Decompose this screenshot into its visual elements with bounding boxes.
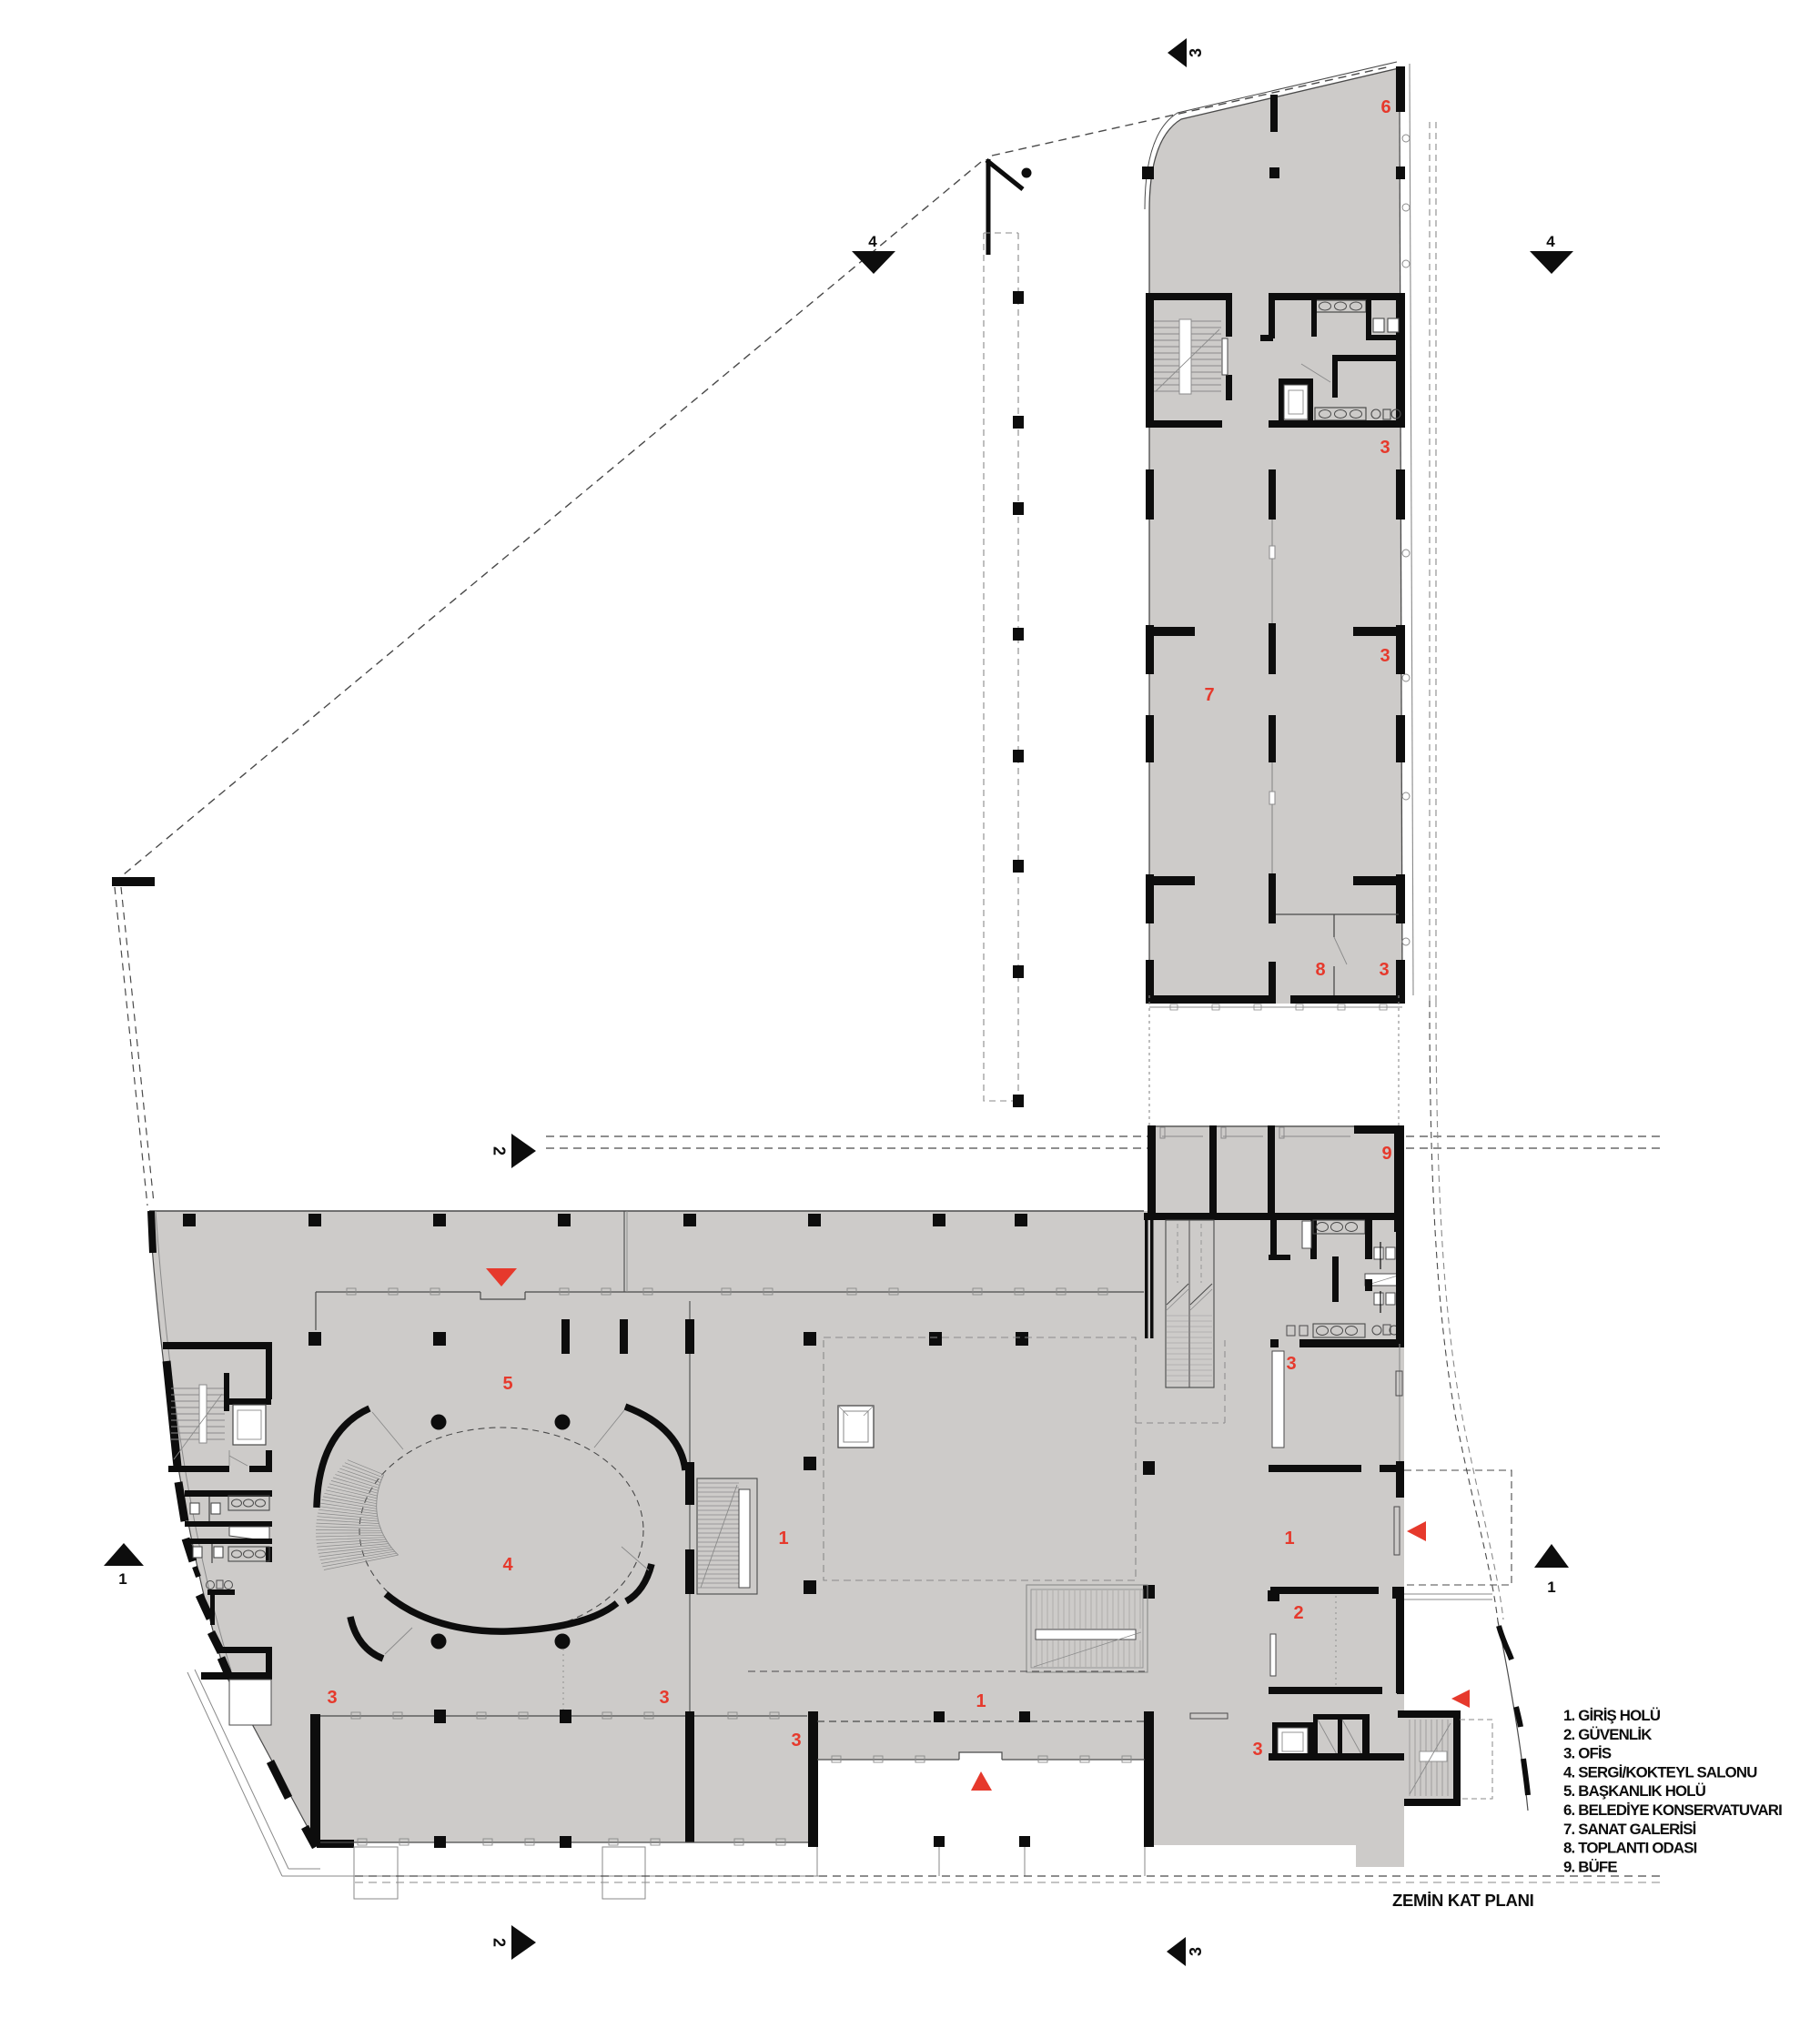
svg-text:9. BÜFE: 9. BÜFE [1563, 1858, 1617, 1875]
svg-text:6. BELEDİYE KONSERVATUVARI: 6. BELEDİYE KONSERVATUVARI [1563, 1801, 1782, 1819]
svg-text:1: 1 [778, 1529, 788, 1549]
svg-text:3: 3 [1379, 960, 1389, 980]
svg-text:3: 3 [1380, 646, 1390, 666]
svg-text:ZEMİN KAT PLANI: ZEMİN KAT PLANI [1392, 1891, 1533, 1910]
svg-text:3: 3 [1187, 48, 1205, 57]
svg-text:3: 3 [327, 1688, 337, 1708]
svg-text:5: 5 [502, 1374, 512, 1394]
svg-text:7. SANAT GALERİSİ: 7. SANAT GALERİSİ [1563, 1821, 1696, 1838]
svg-text:3: 3 [1380, 438, 1390, 458]
svg-text:5. BAŞKANLIK HOLÜ: 5. BAŞKANLIK HOLÜ [1563, 1782, 1706, 1800]
svg-text:1: 1 [976, 1691, 986, 1711]
svg-text:4: 4 [502, 1555, 513, 1575]
svg-text:8: 8 [1315, 960, 1325, 980]
svg-text:2: 2 [490, 1146, 508, 1155]
svg-text:9: 9 [1381, 1144, 1391, 1164]
svg-text:2: 2 [1293, 1603, 1303, 1623]
svg-text:3. OFİS: 3. OFİS [1563, 1745, 1612, 1762]
svg-text:8. TOPLANTI ODASI: 8. TOPLANTI ODASI [1563, 1840, 1697, 1857]
svg-text:2: 2 [490, 1938, 508, 1947]
svg-text:6: 6 [1380, 97, 1390, 117]
svg-text:1. GİRİŞ HOLÜ: 1. GİRİŞ HOLÜ [1563, 1707, 1661, 1724]
svg-text:3: 3 [1286, 1354, 1296, 1374]
svg-text:1: 1 [1284, 1529, 1294, 1549]
svg-text:1: 1 [1547, 1579, 1555, 1596]
svg-text:1: 1 [118, 1570, 126, 1588]
svg-text:4: 4 [1546, 233, 1555, 250]
svg-text:3: 3 [659, 1688, 669, 1708]
svg-text:4. SERGİ/KOKTEYL SALONU: 4. SERGİ/KOKTEYL SALONU [1563, 1763, 1757, 1781]
svg-text:7: 7 [1204, 685, 1214, 705]
svg-text:2. GÜVENLİK: 2. GÜVENLİK [1563, 1726, 1652, 1743]
svg-text:4: 4 [868, 233, 877, 250]
svg-text:3: 3 [1187, 1947, 1205, 1956]
svg-text:3: 3 [791, 1730, 801, 1751]
svg-text:3: 3 [1252, 1740, 1262, 1760]
